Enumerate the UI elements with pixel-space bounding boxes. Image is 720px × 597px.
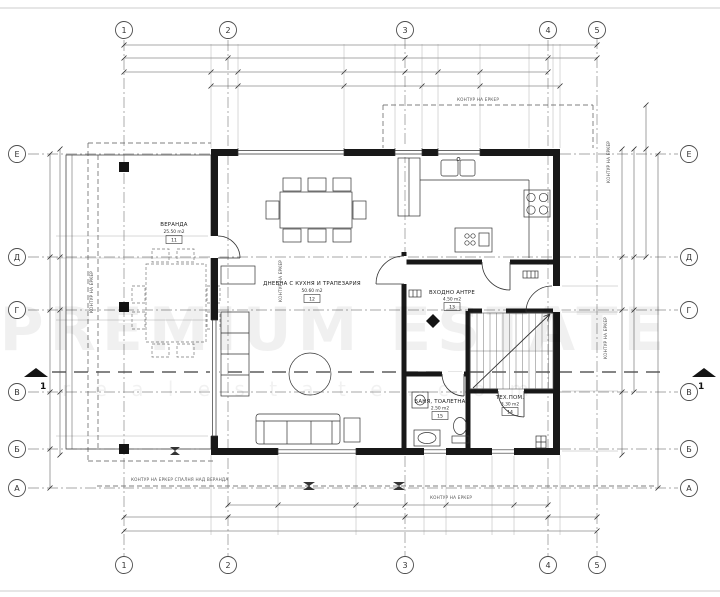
room-label-tech: ТЕХ.ПОМ. 3.30 m2 14 xyxy=(495,395,524,416)
grid-bubble-top-2: 2 xyxy=(225,26,230,35)
grid-bubble-top-3: 3 xyxy=(402,26,407,35)
svg-text:ВХОДНО АНТРЕ: ВХОДНО АНТРЕ xyxy=(429,290,475,296)
svg-text:50.60 m2: 50.60 m2 xyxy=(301,288,322,294)
grid-bubble-right-b: Б xyxy=(686,445,692,454)
stove-icon xyxy=(524,190,550,217)
sofa xyxy=(256,414,360,444)
svg-text:15: 15 xyxy=(437,414,443,420)
grid-bubble-bottom-1: 1 xyxy=(121,561,126,570)
grid-bubble-right-g: Г xyxy=(687,306,692,315)
floor-plan-page: PREMIUM ESTATE r e a l e s t a t e . c o… xyxy=(0,0,720,597)
grid-bubble-top-5: 5 xyxy=(594,26,599,35)
grid-bubble-left-e: Е xyxy=(14,150,19,159)
svg-text:4.50 m2: 4.50 m2 xyxy=(443,297,461,303)
svg-text:1: 1 xyxy=(698,382,704,392)
grid-bubble-left-d: Д xyxy=(14,253,20,262)
room-label-veranda: ВЕРАНДА 25.50 m2 11 xyxy=(160,222,188,244)
grid-bubble-right-e: Е xyxy=(686,150,691,159)
grid-bubble-bottom-5: 5 xyxy=(594,561,599,570)
grid-bubble-right-a: А xyxy=(686,484,692,493)
bay-note-right-bottom-vertical: КОНТУР НА ЕРКЕР xyxy=(603,317,608,359)
bay-note-bottom: КОНТУР НА ЕРКЕР xyxy=(430,495,472,500)
grid-bubble-top-4: 4 xyxy=(545,26,550,35)
bay-note-mid-vertical: КОНТУР НА ЕРКЕР xyxy=(278,260,283,302)
svg-text:ВЕРАНДА: ВЕРАНДА xyxy=(160,222,188,228)
sink-icon xyxy=(441,158,475,177)
svg-text:2.50 m2: 2.50 m2 xyxy=(431,406,449,412)
grid-bubble-top-1: 1 xyxy=(121,26,126,35)
bay-note-bottom-long: КОНТУР НА ЕРКЕР СПАЛНЯ НАД ВЕРАНДА xyxy=(131,477,228,482)
svg-text:3.30 m2: 3.30 m2 xyxy=(501,402,519,408)
dimension-lines xyxy=(50,45,658,531)
room-label-bath: БАНЯ, ТОАЛЕТНА 2.50 m2 15 xyxy=(414,399,465,420)
floor-plan-drawing: PREMIUM ESTATE r e a l e s t a t e . c o… xyxy=(0,0,720,597)
grid-bubble-bottom-3: 3 xyxy=(402,561,407,570)
grid-bubble-left-v: В xyxy=(14,388,20,397)
watermark-line2: r e a l e s t a t e . c o m xyxy=(62,377,538,401)
section-marker-left: 1 xyxy=(24,368,48,392)
grid-bubble-bottom-4: 4 xyxy=(545,561,550,570)
grid-bubble-bottom-2: 2 xyxy=(225,561,230,570)
grid-bubble-left-b: Б xyxy=(14,445,20,454)
grid-bubble-left-a: А xyxy=(14,484,20,493)
svg-text:11: 11 xyxy=(171,238,177,244)
boiler-icon xyxy=(536,436,546,448)
svg-text:25.50 m2: 25.50 m2 xyxy=(163,229,184,235)
grid-bubble-left-g: Г xyxy=(15,306,20,315)
watermark: PREMIUM ESTATE r e a l e s t a t e . c o… xyxy=(0,295,670,401)
dimension-ticks xyxy=(48,43,661,534)
grid-bubble-right-d: Д xyxy=(686,253,692,262)
svg-text:1: 1 xyxy=(40,382,46,392)
bay-note-left-vertical: КОНТУР НА ЕРКЕР xyxy=(89,271,94,313)
grid-bubble-right-v: В xyxy=(686,388,692,397)
watermark-line1: PREMIUM ESTATE xyxy=(0,295,670,365)
kitchen-island xyxy=(455,228,492,252)
svg-text:13: 13 xyxy=(449,305,455,311)
side-table xyxy=(344,418,360,442)
svg-text:ТЕХ.ПОМ.: ТЕХ.ПОМ. xyxy=(495,395,524,401)
svg-text:14: 14 xyxy=(507,410,513,416)
kitchen xyxy=(398,158,550,298)
washbasin-icon xyxy=(414,430,440,446)
bay-note-right-top-vertical: КОНТУР НА ЕРКЕР xyxy=(606,141,611,183)
dining-table-set xyxy=(266,178,366,242)
svg-text:БАНЯ, ТОАЛЕТНА: БАНЯ, ТОАЛЕТНА xyxy=(414,399,465,405)
bay-note-top: КОНТУР НА ЕРКЕР xyxy=(457,97,499,102)
svg-text:12: 12 xyxy=(309,297,315,303)
kitchen-counter xyxy=(420,180,529,258)
